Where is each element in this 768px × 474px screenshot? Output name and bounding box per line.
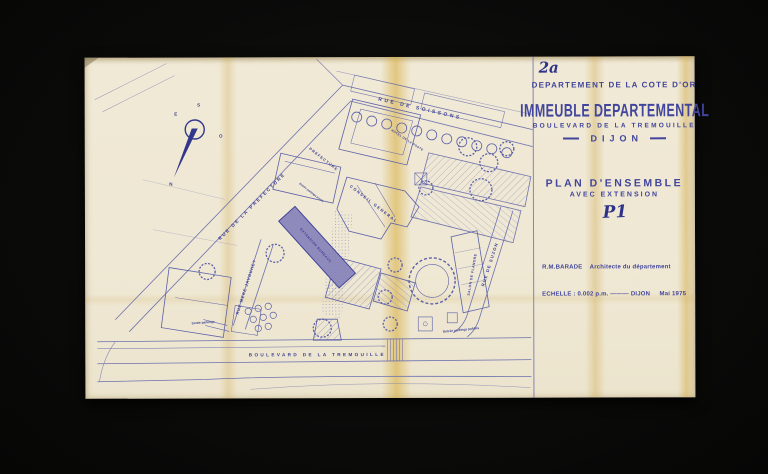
building-title: IMMEUBLE DEPARTEMENTAL xyxy=(520,101,709,121)
sheet-number-handwritten: 2a xyxy=(539,59,559,77)
compass-letter-needle: N xyxy=(169,182,172,187)
street-trees-row xyxy=(352,112,512,158)
title-block: 2a DEPARTEMENT DE LA COTE D'OR IMMEUBLE … xyxy=(533,56,696,397)
dash-rule-left xyxy=(563,138,579,140)
city-name: DIJON xyxy=(585,133,643,143)
architect-scale-block: R.M.BARADE Architecte du département ECH… xyxy=(542,245,686,317)
plan-title: PLAN D'ENSEMBLE xyxy=(546,177,683,189)
building-label-conseil-general: CONSEIL GENERAL xyxy=(349,184,399,224)
site-label-sortie-parkings: Sortie parkings xyxy=(191,320,215,326)
site-label-entree-parkings-publics: Entrée parkings publics xyxy=(443,326,480,334)
compass-north-arrow-icon: S E O N xyxy=(169,102,223,186)
building-label-salon-de-flandre: SALON DE FLANDRE xyxy=(467,253,478,296)
dash-rule-right xyxy=(650,137,666,139)
site-plan-drawing: S E O N RUE DE SOISSONS RUE DE LA PREFEC… xyxy=(85,57,534,399)
compass-letter-top: S xyxy=(197,102,200,107)
buildings-layer xyxy=(161,75,532,341)
building-address: BOULEVARD DE LA TREMOUILLE xyxy=(533,122,696,129)
building-label-hotel-de-la-poste: HOTEL DE LA POSTE xyxy=(390,128,424,152)
scale-line: ECHELLE : 0.002 p.m. ——— DIJON Mai 1975 xyxy=(542,290,686,299)
architect-line: R.M.BARADE Architecte du département xyxy=(542,263,686,272)
street-label-rue-mere-javouhey: RUE MERE JAVOUHEY xyxy=(235,259,257,315)
plan-subtitle: AVEC EXTENSION xyxy=(570,191,659,198)
department-title: DEPARTEMENT DE LA COTE D'OR xyxy=(532,80,697,89)
compass-letter-left: E xyxy=(174,112,177,117)
city-row: DIJON xyxy=(562,133,666,143)
photo-background: S E O N RUE DE SOISSONS RUE DE LA PREFEC… xyxy=(0,0,768,474)
plan-sheet-paper: S E O N RUE DE SOISSONS RUE DE LA PREFEC… xyxy=(85,56,696,399)
site-label-entree-parkings-prives: Entrée parkings privés xyxy=(298,182,325,204)
building-label-prefecture: PREFECTURE xyxy=(308,147,339,172)
sheet-code-handwritten: P1 xyxy=(602,202,627,223)
street-label-boulevard-de-la-tremouille: BOULEVARD DE LA TREMOUILLE xyxy=(249,352,386,357)
compass-letter-right: O xyxy=(219,133,223,138)
street-label-rue-de-la-prefecture: RUE DE LA PREFECTURE xyxy=(217,172,286,241)
